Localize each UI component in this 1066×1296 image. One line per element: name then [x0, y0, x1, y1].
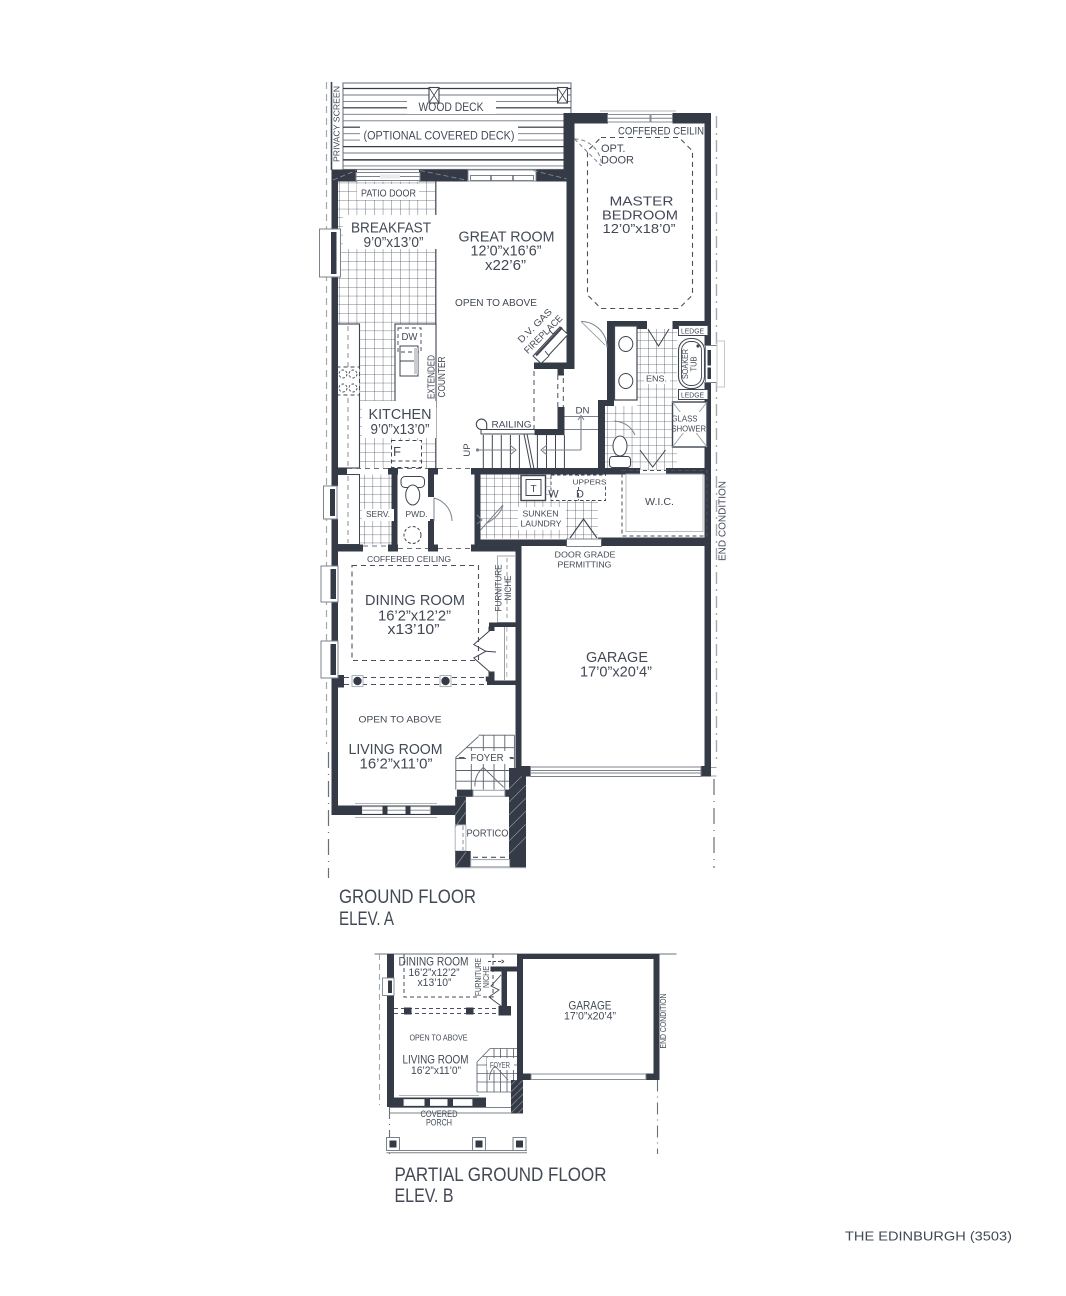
svg-text:DINING ROOM: DINING ROOM	[365, 592, 465, 609]
svg-text:x13’10”: x13’10”	[388, 621, 440, 638]
svg-text:FURNITURE: FURNITURE	[494, 565, 504, 612]
svg-text:NICHE: NICHE	[503, 576, 513, 601]
svg-text:T: T	[530, 484, 536, 495]
svg-text:DN: DN	[576, 406, 590, 417]
svg-text:DW: DW	[402, 331, 418, 343]
svg-text:TUB: TUB	[690, 357, 699, 372]
svg-text:9’0”x13’0”: 9’0”x13’0”	[364, 234, 424, 251]
svg-text:OPT.: OPT.	[601, 143, 625, 155]
svg-text:NICHE: NICHE	[482, 966, 491, 988]
svg-text:COFFERED CEILIN: COFFERED CEILIN	[618, 126, 704, 138]
svg-text:PARTIAL GROUND FLOOR: PARTIAL GROUND FLOOR	[395, 1164, 607, 1186]
svg-text:WOOD DECK: WOOD DECK	[419, 100, 484, 114]
svg-text:D: D	[576, 489, 584, 501]
svg-text:12’0”x18’0”: 12’0”x18’0”	[603, 221, 676, 236]
svg-text:ELEV. B: ELEV. B	[395, 1185, 454, 1207]
svg-text:GROUND FLOOR: GROUND FLOOR	[339, 886, 476, 908]
svg-text:PATIO DOOR: PATIO DOOR	[361, 189, 416, 200]
svg-text:LEDGE: LEDGE	[681, 391, 704, 400]
svg-text:RAILING: RAILING	[492, 420, 532, 431]
svg-text:ELEV. A: ELEV. A	[339, 908, 394, 930]
svg-text:x22’6”: x22’6”	[485, 257, 526, 274]
svg-text:16’2”x11’0”: 16’2”x11’0”	[411, 1065, 461, 1077]
svg-text:END CONDITION: END CONDITION	[658, 994, 668, 1049]
svg-text:LAUNDRY: LAUNDRY	[521, 519, 562, 529]
svg-text:SUNKEN: SUNKEN	[523, 509, 559, 519]
svg-text:OPEN TO ABOVE: OPEN TO ABOVE	[410, 1033, 468, 1043]
svg-text:GLASS: GLASS	[672, 415, 698, 424]
svg-text:W.I.C.: W.I.C.	[645, 496, 674, 508]
svg-text:MASTER: MASTER	[610, 194, 674, 209]
svg-text:PRIVACY SCREEN: PRIVACY SCREEN	[332, 86, 342, 162]
svg-text:ENS.: ENS.	[646, 374, 667, 384]
svg-text:F: F	[393, 444, 401, 459]
svg-text:x13’10”: x13’10”	[418, 977, 452, 989]
svg-text:W: W	[548, 489, 559, 501]
svg-text:17’0”x20’4”: 17’0”x20’4”	[564, 1011, 616, 1023]
svg-text:SERV.: SERV.	[366, 510, 390, 519]
svg-text:PORCH: PORCH	[426, 1118, 452, 1128]
svg-text:(OPTIONAL COVERED DECK): (OPTIONAL COVERED DECK)	[364, 131, 515, 143]
svg-text:END CONDITION: END CONDITION	[718, 481, 729, 561]
svg-text:COFFERED CEILING: COFFERED CEILING	[367, 554, 451, 564]
svg-text:LEDGE: LEDGE	[681, 327, 704, 336]
svg-text:UPPERS: UPPERS	[573, 478, 607, 487]
svg-text:COUNTER: COUNTER	[436, 356, 448, 397]
svg-text:OPEN TO ABOVE: OPEN TO ABOVE	[359, 715, 442, 726]
svg-text:UP: UP	[462, 443, 473, 456]
svg-text:OPEN TO ABOVE: OPEN TO ABOVE	[455, 297, 537, 309]
svg-text:PORTICO: PORTICO	[467, 828, 509, 840]
svg-text:FOYER: FOYER	[471, 753, 504, 764]
svg-text:DOOR: DOOR	[601, 155, 634, 167]
svg-text:SHOWER: SHOWER	[672, 425, 707, 434]
svg-text:PWD.: PWD.	[406, 510, 428, 519]
svg-text:16’2”x11’0”: 16’2”x11’0”	[360, 756, 433, 773]
svg-text:PERMITTING: PERMITTING	[558, 560, 612, 570]
svg-text:DOOR GRADE: DOOR GRADE	[555, 550, 616, 560]
svg-text:9’0”x13’0”: 9’0”x13’0”	[371, 421, 430, 438]
svg-text:THE EDINBURGH (3503): THE EDINBURGH (3503)	[845, 1229, 1012, 1244]
svg-text:17’0”x20’4”: 17’0”x20’4”	[580, 664, 652, 681]
